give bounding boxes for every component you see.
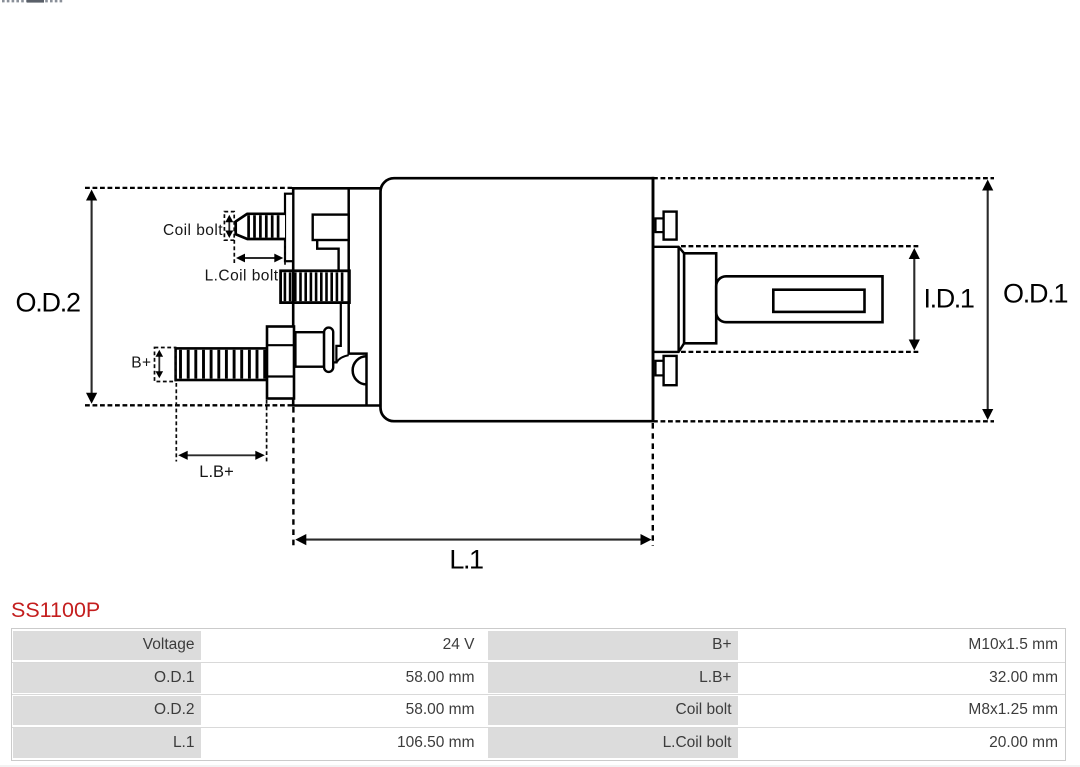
svg-text:L.1: L.1 [449, 545, 483, 575]
svg-text:O.D.2: O.D.2 [16, 287, 81, 317]
svg-text:Coil bolt: Coil bolt [163, 222, 223, 239]
svg-text:I.D.1: I.D.1 [924, 284, 974, 314]
svg-text:B+: B+ [131, 355, 151, 372]
svg-text:L.B+: L.B+ [199, 463, 233, 481]
svg-text:O.D.1: O.D.1 [1003, 279, 1068, 309]
svg-text:L.Coil bolt: L.Coil bolt [205, 268, 279, 285]
